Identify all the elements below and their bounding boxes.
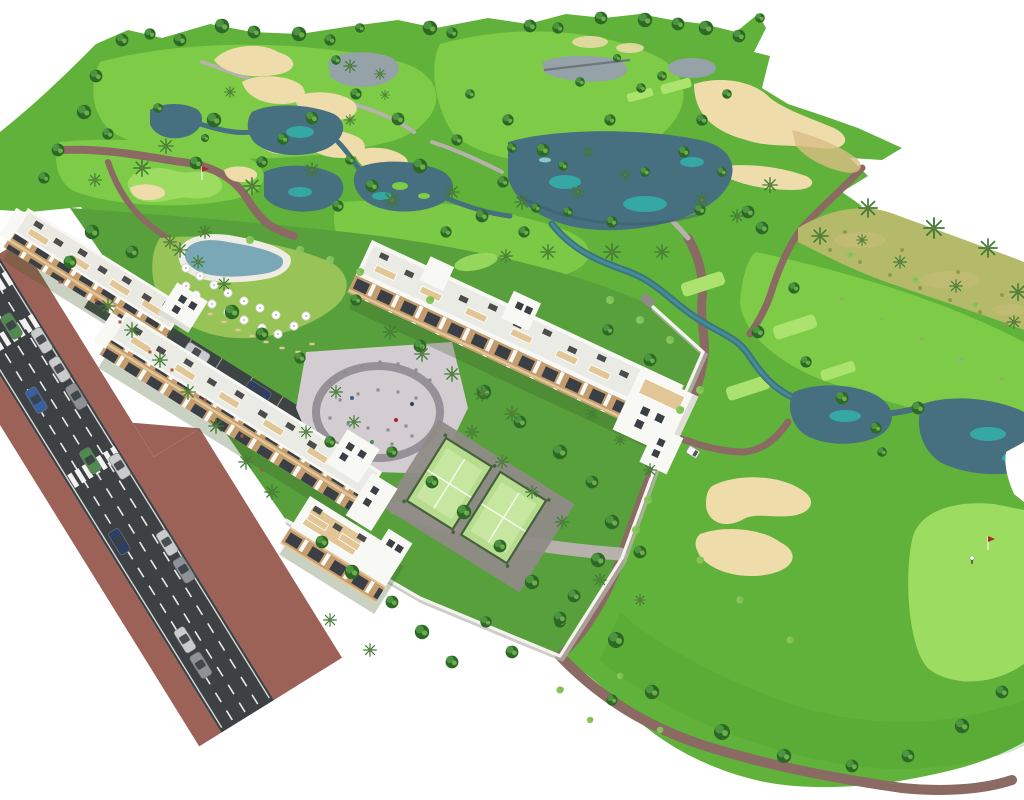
green-bottom-right [908,503,1024,681]
site-plan-render: Aerial 3D architectural rendering of a w… [0,0,1024,800]
architectural-render-page: Aerial 3D architectural rendering of a w… [0,0,1024,800]
